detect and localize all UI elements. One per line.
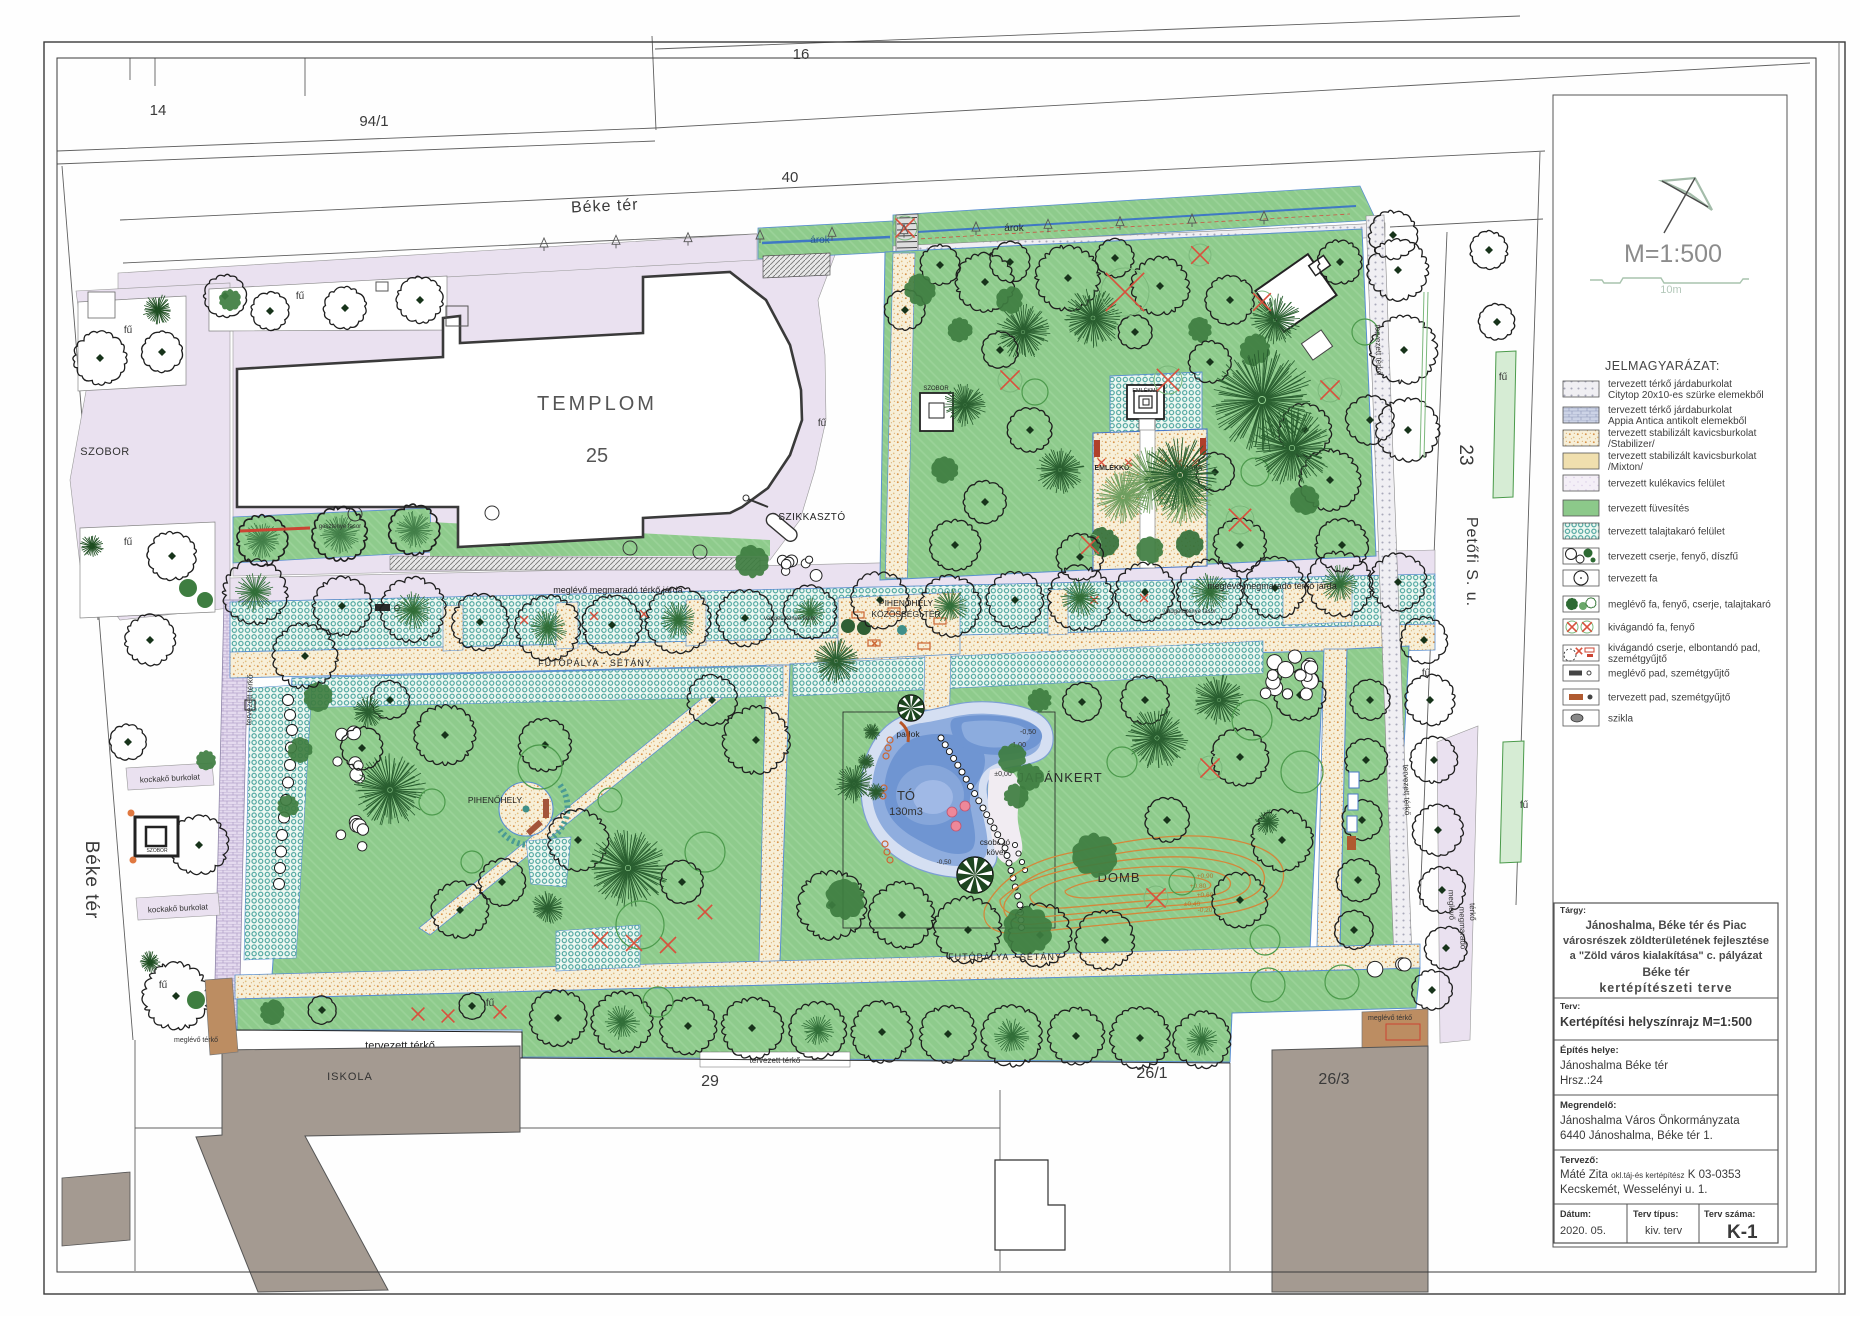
svg-text:kivágandó fa, fenyő: kivágandó fa, fenyő — [1608, 623, 1695, 634]
svg-text:14: 14 — [150, 102, 167, 119]
svg-text:tervezett térkő: tervezett térkő — [1373, 324, 1384, 376]
svg-text:fű: fű — [1499, 372, 1508, 383]
svg-text:Tervező:: Tervező: — [1560, 1155, 1598, 1166]
svg-text:Jánoshalma Város Önkormányzata: Jánoshalma Város Önkormányzata — [1560, 1115, 1740, 1127]
svg-text:ISKOLA: ISKOLA — [327, 1071, 373, 1083]
svg-text:meglévő: meglévő — [1446, 890, 1456, 921]
svg-text:tervezett stabilizált kavicsbu: tervezett stabilizált kavicsburkolat — [1608, 428, 1757, 439]
svg-text:vadgesztenye fasor: vadgesztenye fasor — [764, 616, 816, 622]
svg-text:130m3: 130m3 — [889, 806, 923, 818]
svg-text:Terv típus:: Terv típus: — [1633, 1209, 1678, 1219]
svg-text:Kertépítési helyszínrajz M=: Kertépítési helyszínrajz M=1:500 — [1560, 1015, 1752, 1029]
svg-text:FUTÓPÁLYA - SÉTÁNY: FUTÓPÁLYA - SÉTÁNY — [948, 952, 1062, 962]
svg-text:meglévő térkő: meglévő térkő — [174, 1037, 218, 1044]
svg-text:fű: fű — [818, 418, 827, 429]
svg-text:tervezett térkő járdaburkolat: tervezett térkő járdaburkolat — [1608, 405, 1732, 416]
svg-text:2020. 05.: 2020. 05. — [1560, 1225, 1606, 1237]
svg-text:-0,50: -0,50 — [1020, 729, 1036, 736]
svg-text:29: 29 — [701, 1073, 719, 1090]
svg-text:fű: fű — [124, 325, 133, 336]
svg-text:Citytop 20x10-es szürke elemek: Citytop 20x10-es szürke elemekből — [1608, 390, 1764, 401]
svg-text:Hrsz.:24: Hrsz.:24 — [1560, 1075, 1603, 1087]
svg-text:TEMPLOM: TEMPLOM — [537, 393, 657, 415]
svg-text:meglévő fa, fenyő, cserje, tal: meglévő fa, fenyő, cserje, talajtakaró — [1608, 600, 1771, 611]
svg-text:meglévő térkő: meglévő térkő — [1368, 1015, 1412, 1022]
svg-text:94/1: 94/1 — [359, 113, 388, 130]
svg-text:szikla: szikla — [1608, 714, 1633, 725]
svg-text:Tárgy:: Tárgy: — [1560, 905, 1586, 915]
svg-text:Jánoshalma Béke tér: Jánoshalma Béke tér — [1560, 1060, 1668, 1072]
svg-text:PIHENŐHELY: PIHENŐHELY — [879, 598, 933, 608]
svg-text:JELMAGYARÁZAT:: JELMAGYARÁZAT: — [1605, 358, 1720, 373]
svg-text:meglévő pad, szemétgyűjtő: meglévő pad, szemétgyűjtő — [1608, 669, 1730, 680]
svg-text:meglévő megmaradó térkő járda: meglévő megmaradó térkő járda — [553, 585, 683, 595]
svg-text:/Mixton/: /Mixton/ — [1608, 462, 1643, 473]
svg-text:Appia Antica antikolt elemekbő: Appia Antica antikolt elemekből — [1608, 416, 1746, 427]
svg-text:SZOBOR: SZOBOR — [80, 446, 129, 458]
svg-text:térkő: térkő — [1468, 903, 1478, 922]
svg-text:tervezett térkő: tervezett térkő — [244, 674, 255, 726]
svg-text:tervezett talajtakaró felület: tervezett talajtakaró felület — [1608, 527, 1725, 538]
svg-text:árok: árok — [1004, 223, 1024, 234]
svg-text:fű: fű — [124, 537, 133, 548]
svg-text:FUTÓPÁLYA - SÉTÁNY: FUTÓPÁLYA - SÉTÁNY — [538, 658, 652, 668]
svg-text:Béke tér: Béke tér — [571, 197, 639, 217]
svg-text:tervezett stabilizált kavicsbu: tervezett stabilizált kavicsburkolat — [1608, 451, 1757, 462]
svg-text:árok: árok — [810, 235, 830, 246]
svg-text:Béke tér: Béke tér — [1642, 965, 1690, 979]
svg-text:kertépítészeti terve: kertépítészeti terve — [1599, 981, 1732, 995]
svg-text:K-1: K-1 — [1727, 1222, 1758, 1243]
svg-text:fű: fű — [486, 998, 495, 1009]
svg-text:vadgesztenye fasor: vadgesztenye fasor — [1164, 609, 1216, 615]
svg-text:Terv:: Terv: — [1560, 1001, 1580, 1011]
svg-text:Dátum:: Dátum: — [1560, 1209, 1591, 1219]
svg-text:M=1:500: M=1:500 — [1624, 240, 1722, 268]
svg-text:SZOBOR: SZOBOR — [923, 386, 949, 392]
svg-text:kivágandó cserje, elbontandó p: kivágandó cserje, elbontandó pad, — [1608, 643, 1760, 654]
svg-text:fű: fű — [159, 980, 168, 991]
svg-text:fű: fű — [1422, 668, 1431, 679]
svg-text:40: 40 — [782, 169, 799, 186]
svg-text:10m: 10m — [1660, 284, 1681, 296]
svg-text:SZIKKASZTÓ: SZIKKASZTÓ — [778, 510, 845, 523]
svg-text:meglévő megmaradó térkő járda: meglévő megmaradó térkő járda — [1207, 581, 1337, 591]
svg-text:PIHENŐHELY: PIHENŐHELY — [468, 795, 522, 805]
svg-text:a "Zöld város kialakítása" c.: a "Zöld város kialakítása" c. pályázat — [1570, 950, 1763, 962]
svg-text:Jánoshalma, Béke tér és Piac: Jánoshalma, Béke tér és Piac — [1585, 920, 1747, 932]
svg-text:16: 16 — [793, 46, 810, 63]
svg-text:Kecskemét, Wesselényi u. 1.: Kecskemét, Wesselényi u. 1. — [1560, 1184, 1707, 1196]
svg-text:tervezett kulékavics felület: tervezett kulékavics felület — [1608, 479, 1725, 490]
svg-text:megmaradó: megmaradó — [1457, 906, 1468, 950]
svg-text:/Stabilizer/: /Stabilizer/ — [1608, 439, 1655, 450]
svg-text:tervezett cserje, fenyő, díszf: tervezett cserje, fenyő, díszfű — [1608, 552, 1738, 563]
svg-text:EMLÉKMŰ: EMLÉKMŰ — [1132, 387, 1159, 394]
svg-text:-0,20: -0,20 — [1198, 907, 1213, 914]
svg-text:gesztenye fasor: gesztenye fasor — [319, 524, 361, 530]
svg-text:tervezett füvesítés: tervezett füvesítés — [1608, 504, 1689, 515]
svg-text:+0,90: +0,90 — [1197, 873, 1214, 880]
svg-text:fű: fű — [296, 291, 305, 302]
svg-text:+0,60: +0,60 — [1197, 892, 1214, 899]
svg-text:TÓ: TÓ — [897, 788, 915, 803]
svg-text:szemétgyűjtő: szemétgyűjtő — [1608, 654, 1667, 665]
svg-text:tervezett térkő járdaburkolat: tervezett térkő járdaburkolat — [1608, 379, 1732, 390]
svg-text:kiv. terv: kiv. terv — [1645, 1225, 1683, 1237]
svg-text:tervezett fa: tervezett fa — [1608, 574, 1658, 585]
svg-text:26/3: 26/3 — [1318, 1071, 1349, 1088]
svg-text:23: 23 — [1455, 444, 1476, 465]
svg-text:6440 Jánoshalma, Béke tér 1.: 6440 Jánoshalma, Béke tér 1. — [1560, 1130, 1713, 1142]
svg-text:városrészek zöldterületének fe: városrészek zöldterületének fejlesztése — [1563, 935, 1769, 947]
svg-text:tervezett térkő: tervezett térkő — [1401, 764, 1412, 816]
svg-text:fű: fű — [1520, 800, 1529, 811]
svg-text:Megrendelő:: Megrendelő: — [1560, 1100, 1616, 1111]
svg-text:26/1: 26/1 — [1136, 1065, 1167, 1082]
svg-text:Béke tér: Béke tér — [81, 841, 102, 920]
svg-text:-0,50: -0,50 — [937, 859, 952, 866]
svg-text:Máté Zita okl.táj-és kertépíté: Máté Zita okl.táj-és kertépítész K 03-03… — [1560, 1169, 1741, 1181]
svg-text:Terv száma:: Terv száma: — [1704, 1209, 1755, 1219]
svg-text:Petőfi S. u.: Petőfi S. u. — [1463, 517, 1480, 607]
svg-text:Építés helye:: Építés helye: — [1560, 1045, 1619, 1056]
svg-text:tervezett pad, szemétgyűjtő: tervezett pad, szemétgyűjtő — [1608, 693, 1731, 704]
svg-text:25: 25 — [586, 445, 608, 467]
svg-text:KÖZÖSSÉGI TÉR: KÖZÖSSÉGI TÉR — [871, 609, 940, 619]
svg-text:SZOBOR: SZOBOR — [146, 848, 168, 854]
